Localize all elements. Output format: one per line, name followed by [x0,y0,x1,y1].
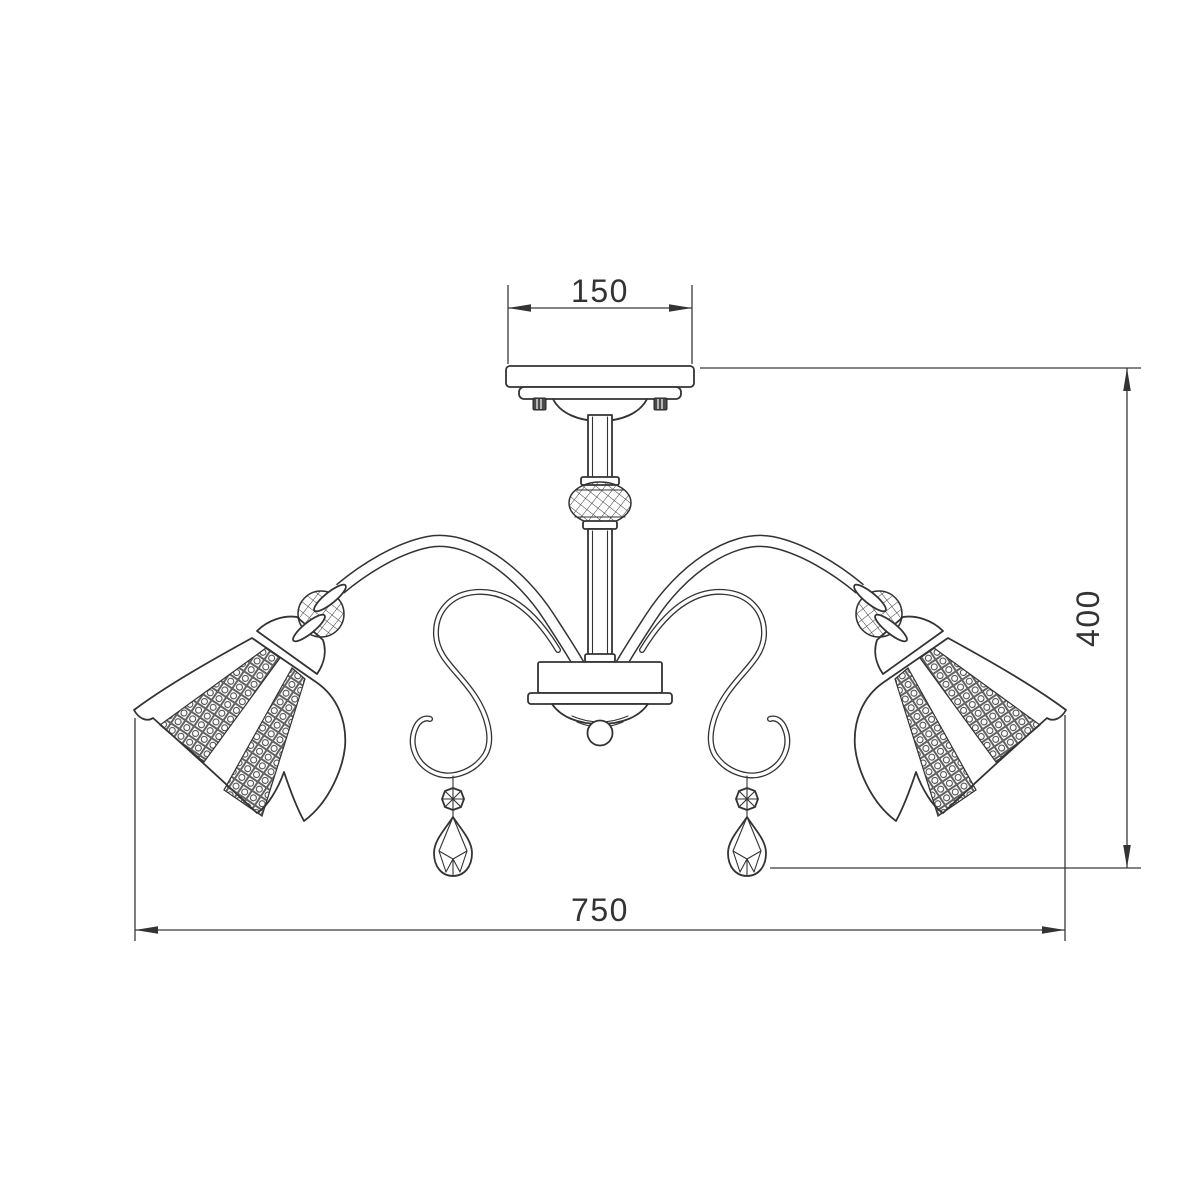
left-scroll-ornament [413,592,558,776]
left-shade [134,581,349,821]
arrowhead-right [1042,926,1065,934]
left-shade-crystal-ball [290,581,349,645]
stem-upper [588,415,612,478]
ball-collar [583,521,617,529]
arrowhead-left [508,304,531,312]
stem-collar [585,654,615,662]
arrowhead-right [669,304,692,312]
left-arm [340,541,582,670]
right-side-assembly [618,541,1066,876]
arrowhead-left [135,926,158,934]
dimension-label-overall-width: 750 [571,892,629,928]
stem-crystal-ball [569,477,631,529]
left-crystal-pendant [434,776,472,876]
dimension-canopy-width: 150 [508,273,692,364]
mounting-screw [533,398,546,410]
hub-finial-ball [588,721,613,746]
central-hub [528,662,672,746]
hub-body [538,662,662,693]
canopy [506,366,694,421]
mounting-screw [654,398,667,410]
hub-flange [528,693,672,704]
left-side-assembly [134,541,582,876]
stem-lower [585,529,615,662]
drawing-canvas: 150 400 750 [0,0,1200,1200]
arrowhead-bottom [1123,845,1131,868]
dimension-label-canopy-width: 150 [571,273,629,309]
chandelier-technical-drawing: 150 400 750 [0,0,1200,1200]
arrowhead-top [1123,368,1131,391]
dimension-label-height: 400 [1070,589,1106,647]
